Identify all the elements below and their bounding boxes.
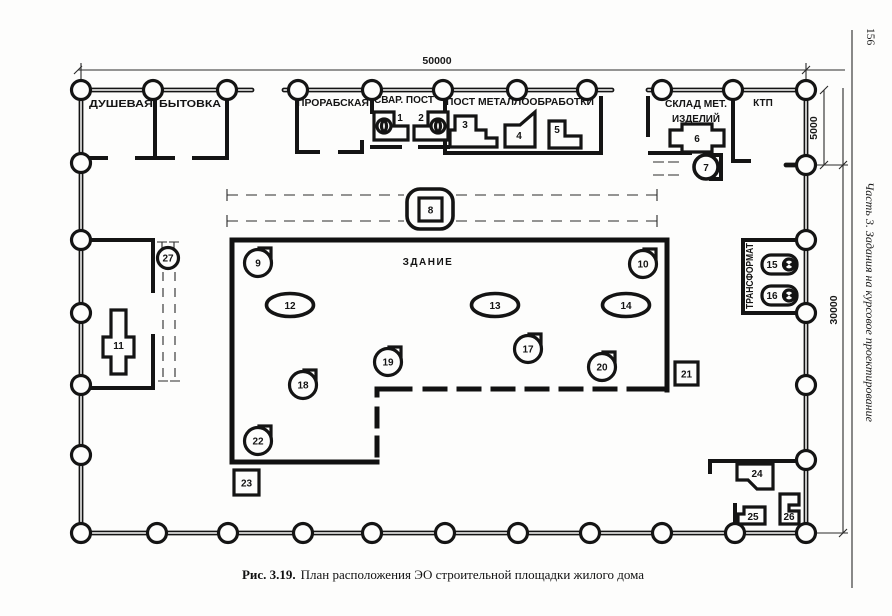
running-title: Часть 3. Задания на курсовое проектирова… bbox=[863, 182, 875, 422]
marker-16-transformer-unit: 16 bbox=[762, 286, 797, 305]
scanned-book-page: 50000 5000 30000 bbox=[0, 0, 892, 616]
page-margin: 156 Часть 3. Задания на курсовое проекти… bbox=[852, 28, 876, 588]
svg-text:25: 25 bbox=[747, 512, 759, 523]
svg-text:14: 14 bbox=[620, 301, 632, 312]
marker-9-floodlight: 9 bbox=[245, 248, 272, 277]
svg-text:16: 16 bbox=[766, 291, 778, 302]
label-utility-room: БЫТОВКА bbox=[159, 99, 221, 110]
marker-10-floodlight: 10 bbox=[630, 249, 657, 278]
svg-text:17: 17 bbox=[522, 345, 534, 356]
svg-text:12: 12 bbox=[284, 301, 296, 312]
figure-caption: Рис. 3.19.План расположения ЭО строитель… bbox=[242, 567, 644, 582]
dim-height-label: 30000 bbox=[828, 295, 840, 324]
label-metal-storage-1: СКЛАД МЕТ. bbox=[665, 99, 727, 110]
svg-text:24: 24 bbox=[751, 469, 763, 480]
marker-18-floodlight: 18 bbox=[290, 370, 317, 399]
marker-4-machine-tool: 4 bbox=[505, 112, 535, 147]
svg-text:21: 21 bbox=[681, 370, 693, 381]
marker-14-zone: 14 bbox=[603, 294, 650, 317]
marker-3-machine-tool: 3 bbox=[450, 116, 497, 147]
svg-text:19: 19 bbox=[382, 358, 394, 369]
svg-text:26: 26 bbox=[783, 512, 795, 523]
svg-text:23: 23 bbox=[241, 479, 253, 490]
dim-width-label: 50000 bbox=[422, 55, 451, 67]
marker-25-machine: 25 bbox=[738, 507, 765, 524]
label-ktp: КТП bbox=[753, 98, 773, 109]
svg-text:7: 7 bbox=[703, 163, 709, 174]
marker-15-transformer-unit: 15 bbox=[762, 255, 797, 274]
svg-text:9: 9 bbox=[255, 259, 261, 270]
marker-17-floodlight: 17 bbox=[515, 334, 542, 363]
marker-13-zone: 13 bbox=[472, 294, 519, 317]
figure-caption-text: План расположения ЭО строительной площад… bbox=[301, 567, 645, 582]
svg-text:5: 5 bbox=[554, 125, 560, 136]
svg-text:20: 20 bbox=[596, 363, 608, 374]
site-plan-figure: 50000 5000 30000 bbox=[0, 0, 892, 616]
marker-6-metal-stock: 6 bbox=[670, 124, 724, 152]
marker-27-rail-hoist: 27 bbox=[158, 248, 179, 269]
marker-26-machine: 26 bbox=[780, 494, 799, 524]
marker-7-hoist: 7 bbox=[694, 155, 718, 179]
svg-text:18: 18 bbox=[297, 381, 309, 392]
dim-offset-label: 5000 bbox=[808, 116, 820, 140]
marker-24-machine: 24 bbox=[737, 464, 773, 489]
label-foreman-office: ПРОРАБСКАЯ bbox=[297, 98, 369, 109]
svg-text:13: 13 bbox=[489, 301, 501, 312]
svg-text:8: 8 bbox=[428, 206, 434, 217]
marker-20-floodlight: 20 bbox=[589, 352, 616, 381]
marker-1-welding-machine: 1 bbox=[374, 112, 408, 140]
svg-text:1: 1 bbox=[397, 113, 403, 124]
marker-23-box: 23 bbox=[234, 470, 259, 495]
marker-2-welding-machine: 2 bbox=[414, 112, 448, 140]
marker-8-crane: 8 bbox=[407, 189, 453, 229]
svg-text:6: 6 bbox=[694, 134, 700, 145]
marker-19-floodlight: 19 bbox=[375, 347, 402, 376]
svg-text:10: 10 bbox=[637, 260, 649, 271]
label-welding-post: СВАР. ПОСТ bbox=[374, 95, 434, 106]
marker-5-machine-tool: 5 bbox=[549, 121, 581, 148]
marker-22-floodlight: 22 bbox=[245, 426, 272, 455]
svg-text:11: 11 bbox=[113, 341, 124, 352]
label-transformer: ТРАНСФОРМАТ bbox=[745, 243, 756, 309]
marker-21-box: 21 bbox=[675, 362, 698, 385]
figure-caption-number: Рис. 3.19. bbox=[242, 567, 296, 582]
svg-text:2: 2 bbox=[418, 113, 424, 124]
svg-text:22: 22 bbox=[252, 437, 264, 448]
svg-text:4: 4 bbox=[516, 131, 522, 142]
page-number: 156 bbox=[864, 28, 876, 46]
marker-12-zone: 12 bbox=[267, 294, 314, 317]
label-building: ЗДАНИЕ bbox=[403, 257, 454, 268]
svg-text:27: 27 bbox=[162, 254, 174, 265]
svg-text:15: 15 bbox=[766, 260, 778, 271]
marker-11-tower-crane: 11 bbox=[103, 310, 134, 374]
svg-text:3: 3 bbox=[462, 120, 468, 131]
label-shower: ДУШЕВАЯ bbox=[89, 99, 153, 110]
